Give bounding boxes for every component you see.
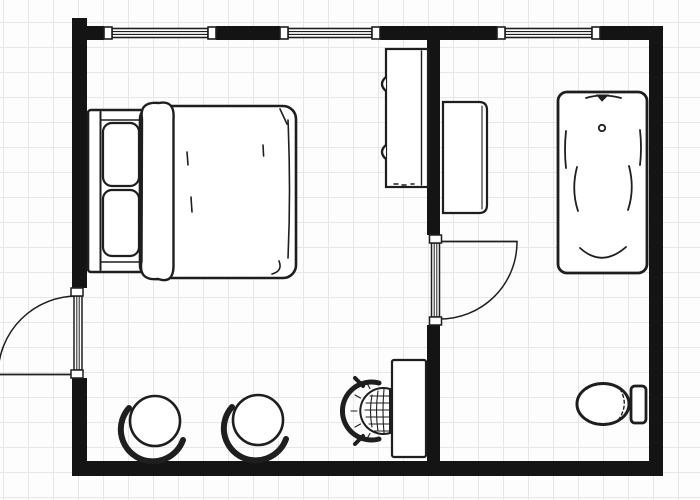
bathroom-cabinet	[443, 102, 487, 213]
wardrobe-hinge	[382, 145, 386, 159]
door-panel	[432, 243, 440, 317]
cabinet-body	[443, 102, 487, 213]
window-glass	[288, 29, 372, 38]
toilet	[577, 384, 646, 425]
round-chair-2	[224, 395, 286, 460]
double-bed	[88, 103, 296, 281]
right-wall	[649, 26, 663, 476]
wicker-stool	[342, 378, 390, 444]
top-wall-segment-1	[87, 26, 104, 40]
chair-seat	[130, 396, 180, 446]
door-swing-arc	[0, 296, 77, 375]
furniture	[88, 49, 647, 461]
window-glass	[505, 29, 592, 38]
window-end-cap	[104, 27, 112, 39]
wardrobe	[382, 49, 428, 187]
tub-drain	[599, 125, 605, 131]
chair-seat	[233, 395, 283, 445]
door-jamb-cap	[71, 370, 83, 378]
door-jamb-cap	[430, 317, 442, 325]
bathroom-door	[430, 235, 518, 325]
floorplan-canvas	[0, 0, 700, 500]
pillow-bottom	[103, 190, 139, 256]
pillow-top	[103, 123, 139, 186]
window-end-cap	[372, 27, 380, 39]
left-wall-upper	[72, 18, 87, 288]
tub-rim	[558, 92, 647, 273]
windows	[104, 27, 600, 39]
toilet-tank	[631, 386, 646, 423]
window-end-cap	[497, 27, 505, 39]
window-end-cap	[280, 27, 288, 39]
window-2	[280, 27, 380, 39]
bathtub	[558, 92, 647, 273]
toilet-bowl	[577, 384, 629, 425]
window-3	[497, 27, 600, 39]
door-jamb-cap	[430, 235, 442, 243]
top-wall-segment-2	[216, 26, 280, 40]
stool-seat	[360, 388, 390, 434]
dressing-table	[392, 360, 426, 457]
window-glass	[112, 29, 208, 38]
door-swing-arc	[440, 242, 517, 319]
window-1	[104, 27, 216, 39]
window-end-cap	[592, 27, 600, 39]
window-end-cap	[208, 27, 216, 39]
wardrobe-hinge	[382, 77, 386, 91]
entry-door	[0, 288, 83, 378]
round-chair-1	[121, 396, 183, 461]
table-top	[392, 360, 426, 457]
door-jamb-cap	[71, 288, 83, 296]
top-wall-segment-3	[380, 26, 497, 40]
door-panel	[74, 296, 82, 370]
folded-sheet	[141, 103, 174, 281]
interior-wall-lower	[427, 325, 440, 461]
floorplan-page	[0, 0, 700, 500]
